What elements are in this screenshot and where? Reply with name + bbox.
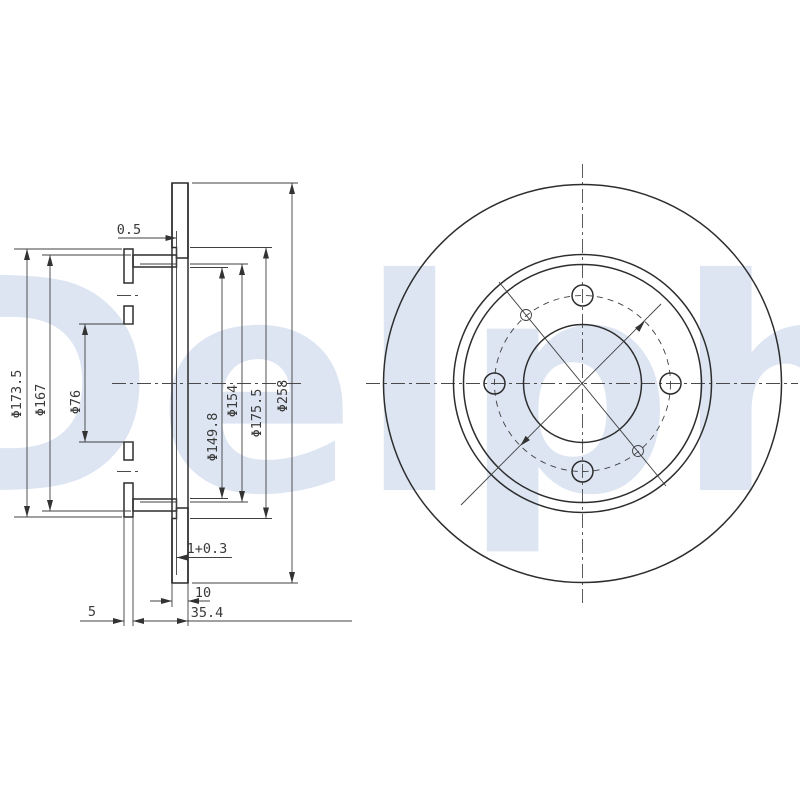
- dim-label-35-4: 35.4: [191, 605, 224, 621]
- flange-segment: [124, 442, 133, 460]
- flange-segment: [124, 483, 133, 517]
- dimension-arrowheads: [24, 183, 295, 583]
- dim-label-5: 5: [88, 604, 96, 620]
- dim-label-10: 10: [195, 585, 211, 601]
- dim-label-d258: Φ258: [275, 380, 291, 413]
- flange-segment: [124, 306, 133, 324]
- section-hatched-areas: [124, 183, 188, 583]
- dim-flange-and-overall-width: 5 35.4: [80, 604, 352, 624]
- friction-ring-lower-section: [172, 508, 188, 583]
- hat-wall-upper-section: [133, 255, 177, 267]
- dim-label-d154: Φ154: [225, 385, 241, 418]
- flange-segment: [124, 249, 133, 283]
- dim-label-d173-5: Φ173.5: [9, 370, 25, 419]
- bolt-circle-diameter-line: [461, 304, 661, 505]
- dim-hat-step: 1+0.3: [177, 541, 233, 561]
- dim-label-d167: Φ167: [33, 384, 49, 417]
- dim-friction-step: 0.5: [117, 222, 177, 241]
- diameter-dimension-lines: [27, 183, 292, 583]
- dim-label-d149-8: Φ149.8: [205, 413, 221, 462]
- friction-ring-upper-section: [172, 183, 188, 258]
- dim-label-d76: Φ76: [68, 390, 84, 414]
- dim-label-0-5: 0.5: [117, 222, 141, 238]
- dim-label-1-0-3: 1+0.3: [187, 541, 228, 557]
- section-view: Φ173.5 Φ167 Φ76 Φ149.8 Φ154 Φ175.5 Φ258 …: [9, 183, 352, 626]
- dim-label-d175-5: Φ175.5: [249, 389, 265, 438]
- technical-drawing-page: Delphi: [0, 0, 800, 800]
- section-edges: [140, 183, 188, 583]
- front-view: [366, 164, 798, 606]
- dim-disc-thickness: 10: [150, 585, 211, 604]
- hat-wall-lower-section: [133, 499, 177, 511]
- brake-disc-drawing: Φ173.5 Φ167 Φ76 Φ149.8 Φ154 Φ175.5 Φ258 …: [0, 0, 800, 800]
